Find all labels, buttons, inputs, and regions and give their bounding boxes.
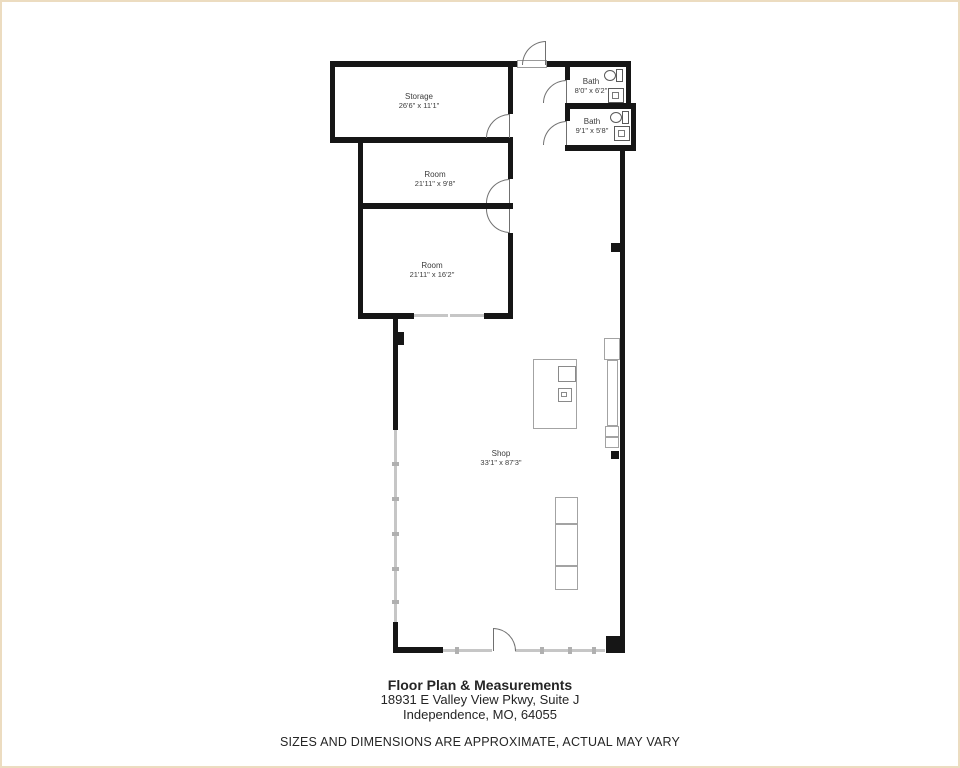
room-dimensions: 21'11" x 16'2" [410,271,455,279]
bath1-toilet-tank [616,69,623,82]
shop-shelf-unit-c [555,566,578,590]
bottom-storefront-glass-left [443,649,492,652]
wall-room2-bottom-right [484,313,513,319]
bath1-sink-basin [612,92,619,99]
shop-entry-door-swing [493,628,516,651]
room-name: Bath [575,78,608,86]
mullion-tick [540,647,544,654]
room-label-bath2: Bath 9'1" x 5'8" [576,118,609,135]
room-label-room2: Room 21'11" x 16'2" [410,262,455,279]
room-dimensions: 8'0" x 6'2" [575,87,608,95]
wall-bath-divider [565,103,631,109]
wall-storage-left [330,61,335,143]
room-name: Storage [399,93,440,101]
room-dimensions: 21'11" x 9'8" [415,180,456,188]
address-line2: Independence, MO, 64055 [0,708,960,723]
storage-door-swing [486,114,510,138]
room-name: Bath [576,118,609,126]
room-dimensions: 26'6" x 11'1" [399,102,440,110]
wall-corridor-bath1-upper [565,61,570,80]
shop-shelf-unit-b [555,524,578,566]
counter-end-post [611,451,619,459]
wall-corridor-bath2-upper [565,109,570,121]
wall-bath2-bottom [565,145,636,151]
floor-plan: Storage 26'6" x 11'1" Room 21'11" x 9'8"… [0,0,960,768]
footer-text-block: Floor Plan & Measurements 18931 E Valley… [0,677,960,749]
bath2-toilet-tank [622,111,629,124]
wall-rooms-left [358,143,363,313]
room-label-shop: Shop 33'1" x 87'3" [480,450,521,467]
room-dimensions: 9'1" x 5'8" [576,127,609,135]
wall-room1-right [508,143,513,179]
right-counter-unit-b [605,437,619,448]
room-label-room1: Room 21'11" x 9'8" [415,171,456,188]
left-storefront-glass [394,430,397,622]
bath2-toilet-icon [610,112,622,123]
wall-top-left-segment [330,61,518,67]
wall-shop-left-upper [393,313,398,430]
right-counter-top [604,338,620,360]
wall-bath2-right [631,103,636,151]
room-dimensions: 33'1" x 87'3" [480,459,521,467]
wall-shop-right [620,151,625,653]
room-label-bath1: Bath 8'0" x 6'2" [575,78,608,95]
mullion-tick [392,462,399,466]
room-name: Shop [480,450,521,458]
bath2-sink-basin [618,130,625,137]
right-counter-unit-a [605,426,619,437]
room-name: Room [410,262,455,270]
address-line1: 18931 E Valley View Pkwy, Suite J [0,693,960,708]
room2-door-swing [486,209,510,233]
room-label-storage: Storage 26'6" x 11'1" [399,93,440,110]
mullion-tick [592,647,596,654]
wall-bath1-right [626,61,631,108]
entry-door-swing [522,41,546,65]
bath2-door-swing [543,121,567,145]
shop-island-cabinet [558,366,576,382]
plan-title: Floor Plan & Measurements [0,677,960,693]
mullion-tick [392,600,399,604]
wall-room2-right [508,233,513,313]
mullion-tick [568,647,572,654]
wall-storage-right [508,61,513,114]
right-wall-panel [611,243,620,252]
wall-bottom-left [393,647,443,653]
shop-island-fixture [561,392,567,397]
wall-room2-bottom-left [358,313,414,319]
mullion-tick [392,567,399,571]
shop-shelf-unit-a [555,497,578,524]
room1-door-swing [486,179,510,203]
right-counter-long [607,360,618,426]
room2-opening-glass-right [450,314,484,317]
mullion-tick [392,532,399,536]
room2-opening-glass-left [414,314,448,317]
wall-top-right-segment [547,61,631,67]
bath1-door-swing [543,80,567,103]
room-name: Room [415,171,456,179]
wall-bottom-right-corner-post [606,636,625,653]
mullion-tick [392,497,399,501]
left-wall-post [398,332,404,345]
mullion-tick [455,647,459,654]
disclaimer: SIZES AND DIMENSIONS ARE APPROXIMATE, AC… [0,735,960,749]
